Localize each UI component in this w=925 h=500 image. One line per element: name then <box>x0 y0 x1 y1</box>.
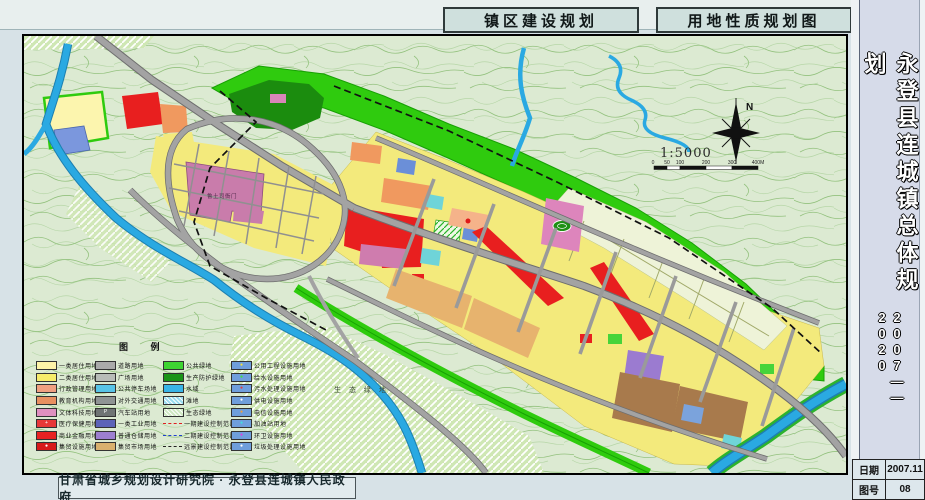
legend-label: 广场用地 <box>118 373 144 382</box>
title-block-table: 日期 2007.11 图号 08 <box>852 459 925 500</box>
legend-label: 公共停车场地 <box>118 384 157 393</box>
legend-item: 行政管理用地 <box>36 383 98 395</box>
legend-item: ●供电设施用地 <box>231 395 306 407</box>
legend-swatch: ● <box>231 431 252 440</box>
legend-item: ●加油站用地 <box>231 418 306 430</box>
stadium-track <box>558 224 567 229</box>
legend-swatch <box>95 373 116 382</box>
legend-line <box>163 446 182 447</box>
footer-credit-text: 甘肃省城乡规划设计研究院 · 永登县连城镇人民政府 <box>59 471 355 500</box>
legend-swatch <box>36 361 57 370</box>
legend-item: 公共绿地 <box>163 360 236 372</box>
sidebar-title-panel: 永登县连城镇总体规划 2007——2020 <box>851 0 925 459</box>
legend-item: 二期建设控制范围 <box>163 430 236 442</box>
parking-parcel-2 <box>420 248 441 266</box>
legend-item: 对外交通用地 <box>95 395 157 407</box>
plan-years-vertical: 2007——2020 <box>875 310 905 459</box>
legend-swatch <box>163 361 184 370</box>
legend-item: 教育机构用地 <box>36 395 98 407</box>
legend-label: 集贸市场用地 <box>118 442 157 451</box>
legend-label: 道路用地 <box>118 361 144 370</box>
sheet-value: 08 <box>886 480 925 500</box>
legend-label: 供电设施用地 <box>254 396 293 405</box>
legend-label: 普通仓储用地 <box>118 431 157 440</box>
legend-swatch: ● <box>36 442 57 451</box>
legend-label: 远景建设控制范围 <box>184 442 236 451</box>
legend-label: 商业金融用地 <box>59 431 98 440</box>
title-construction-plan: 镇区建设规划 <box>443 7 639 33</box>
eco-green-label: 生 态 绿 地 <box>334 385 389 394</box>
legend-label: 加油站用地 <box>254 419 287 428</box>
legend-item: ●污水处理设施用地 <box>231 383 306 395</box>
legend-item: 滩地 <box>163 395 236 407</box>
legend-item: ●垃圾处理设施用地 <box>231 441 306 453</box>
scale-label: 1:5000 <box>660 146 712 161</box>
legend-swatch: + <box>36 419 57 428</box>
legend-item: 生态绿地 <box>163 406 236 418</box>
legend-column-2: 道路用地广场用地公共停车场地对外交通用地P汽车站用地一类工业用地普通仓储用地集贸… <box>95 360 157 453</box>
legend-label: 汽车站用地 <box>118 408 151 417</box>
legend-item: 道路用地 <box>95 360 157 372</box>
legend-item: 一类居住用地 <box>36 360 98 372</box>
svg-text:0: 0 <box>652 160 655 166</box>
legend-line <box>163 435 182 436</box>
hospital-dot <box>466 219 471 224</box>
svg-text:400M: 400M <box>752 160 765 166</box>
legend-label: 生产防护绿地 <box>186 373 225 382</box>
legend-column-4: ●公用工程设施用地●给水设施用地●污水处理设施用地●供电设施用地●电信设施用地●… <box>231 360 306 453</box>
legend-label: 水域 <box>186 384 199 393</box>
title-right-text: 用地性质规划图 <box>687 10 820 31</box>
legend-label: 行政管理用地 <box>59 384 98 393</box>
legend-item: 商业金融用地 <box>36 430 98 442</box>
legend-item: ●公用工程设施用地 <box>231 360 306 372</box>
sidebar-inner-panel: 永登县连城镇总体规划 2007——2020 <box>859 0 920 459</box>
legend-label: 垃圾处理设施用地 <box>254 442 306 451</box>
legend-item: +医疗保健用地 <box>36 418 98 430</box>
date-value: 2007.11 <box>886 460 925 480</box>
legend-label: 滩地 <box>186 396 199 405</box>
legend-swatch: ● <box>231 373 252 382</box>
legend-label: 集贸设施用地 <box>59 442 98 451</box>
legend-label: 环卫设施用地 <box>254 431 293 440</box>
title-left-text: 镇区建设规划 <box>484 10 598 31</box>
legend-label: 二期建设控制范围 <box>184 431 236 440</box>
tidal-strip-top <box>24 36 154 50</box>
legend-swatch: ● <box>231 419 252 428</box>
legend-label: 一类工业用地 <box>118 419 157 428</box>
legend-item: 水域 <box>163 383 236 395</box>
legend-item: 集贸市场用地 <box>95 441 157 453</box>
legend-label: 文体科技用地 <box>59 408 98 417</box>
svg-text:100: 100 <box>676 160 685 166</box>
legend-swatch: ● <box>231 408 252 417</box>
legend-swatch <box>163 384 184 393</box>
legend-item: 公共停车场地 <box>95 383 157 395</box>
legend-item: ●给水设施用地 <box>231 372 306 384</box>
footer-credit: 甘肃省城乡规划设计研究院 · 永登县连城镇人民政府 <box>58 477 356 499</box>
legend-label: 一期建设控制范围 <box>184 419 236 428</box>
legend-item: 二类居住用地 <box>36 372 98 384</box>
north-label: N <box>746 102 753 113</box>
svg-text:50: 50 <box>664 160 670 166</box>
legend-item: 生产防护绿地 <box>163 372 236 384</box>
legend-line <box>163 423 182 424</box>
legend-swatch <box>36 431 57 440</box>
legend-swatch: ● <box>231 384 252 393</box>
green-lot-1 <box>608 334 622 344</box>
sheet-label: 图号 <box>853 480 886 500</box>
legend-swatch <box>36 396 57 405</box>
legend-item: 文体科技用地 <box>36 406 98 418</box>
legend-label: 医疗保健用地 <box>59 419 98 428</box>
legend-item: 普通仓储用地 <box>95 430 157 442</box>
legend-label: 生态绿地 <box>186 408 212 417</box>
title-landuse-map: 用地性质规划图 <box>656 7 852 33</box>
legend-swatch <box>95 442 116 451</box>
legend-column-1: 一类居住用地二类居住用地行政管理用地教育机构用地文体科技用地+医疗保健用地商业金… <box>36 360 98 453</box>
legend-column-3: 公共绿地生产防护绿地水域滩地生态绿地一期建设控制范围二期建设控制范围远景建设控制… <box>163 360 236 453</box>
legend-label: 公共绿地 <box>186 361 212 370</box>
heritage-label: 鲁土司衙门 <box>207 192 237 200</box>
svg-text:300: 300 <box>728 160 737 166</box>
legend-swatch <box>163 408 184 417</box>
legend-item: ●集贸设施用地 <box>36 441 98 453</box>
legend-label: 电信设施用地 <box>254 408 293 417</box>
page: 镇区建设规划 用地性质规划图 永登县连城镇总体规划 2007——2020 <box>0 0 925 500</box>
legend-swatch: ● <box>231 361 252 370</box>
green-lot-2 <box>760 364 774 374</box>
legend-swatch <box>36 384 57 393</box>
legend-swatch <box>95 431 116 440</box>
legend-item: 一期建设控制范围 <box>163 418 236 430</box>
legend-label: 公用工程设施用地 <box>254 361 306 370</box>
legend-label: 污水处理设施用地 <box>254 384 306 393</box>
legend-swatch <box>95 419 116 428</box>
legend-label: 一类居住用地 <box>59 361 98 370</box>
map-legend: 图 例 一类居住用地二类居住用地行政管理用地教育机构用地文体科技用地+医疗保健用… <box>33 340 333 468</box>
legend-swatch <box>36 408 57 417</box>
commercial-parcel-loop <box>122 92 163 129</box>
legend-item: 一类工业用地 <box>95 418 157 430</box>
legend-swatch <box>36 373 57 382</box>
legend-label: 二类居住用地 <box>59 373 98 382</box>
legend-label: 对外交通用地 <box>118 396 157 405</box>
legend-label: 教育机构用地 <box>59 396 98 405</box>
legend-swatch: ● <box>231 442 252 451</box>
legend-swatch: ● <box>231 396 252 405</box>
svg-text:200: 200 <box>702 160 711 166</box>
map-frame: 鲁土司衙门 生 态 绿 地 N 1:5000 0 50 100 200 300 … <box>22 34 848 475</box>
utility-parcel-1 <box>396 158 416 175</box>
legend-item: ●环卫设施用地 <box>231 430 306 442</box>
legend-label: 给水设施用地 <box>254 373 293 382</box>
plan-title-vertical: 永登县连城镇总体规划 <box>858 52 922 304</box>
legend-swatch <box>95 384 116 393</box>
forest-site-patch <box>270 94 286 103</box>
legend-title: 图 例 <box>119 340 170 353</box>
legend-swatch <box>163 373 184 382</box>
legend-swatch: P <box>95 408 116 417</box>
legend-swatch <box>95 361 116 370</box>
legend-item: P汽车站用地 <box>95 406 157 418</box>
legend-item: 广场用地 <box>95 372 157 384</box>
legend-swatch <box>95 396 116 405</box>
legend-item: 远景建设控制范围 <box>163 441 236 453</box>
legend-item: ●电信设施用地 <box>231 406 306 418</box>
legend-swatch <box>163 396 184 405</box>
date-label: 日期 <box>853 460 886 480</box>
